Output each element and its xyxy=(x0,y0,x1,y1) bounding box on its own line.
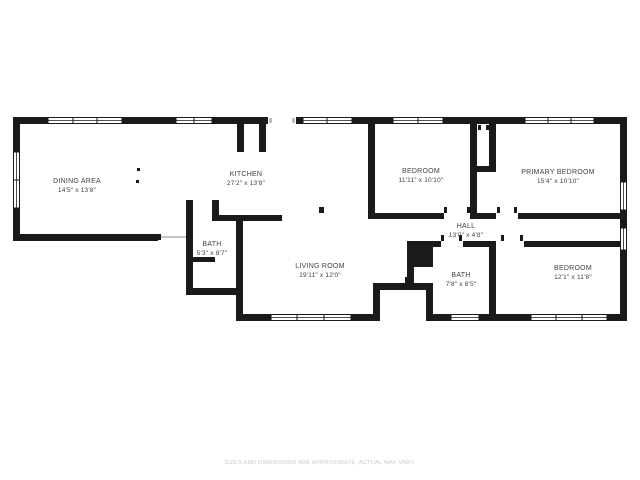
wall-segment xyxy=(237,124,244,152)
room-dims-kitchen: 27'2" x 13'8" xyxy=(227,180,266,187)
room-dims-primary-bedroom: 15'4" x 10'10" xyxy=(537,178,580,185)
window xyxy=(451,315,479,321)
window xyxy=(621,228,627,250)
wall-segment xyxy=(470,172,477,219)
wall-segment xyxy=(373,283,433,290)
room-dims-bath-2: 7'8" x 8'5" xyxy=(446,281,477,288)
window xyxy=(621,182,627,210)
window xyxy=(531,315,607,321)
wall-segment xyxy=(186,288,243,295)
room-label-dining-area: DINING AREA xyxy=(53,178,101,185)
wall-segment xyxy=(212,117,268,124)
room-dims-hall: 13'0" x 4'8" xyxy=(449,232,484,239)
door-jamb-tick xyxy=(441,235,444,241)
window xyxy=(14,152,20,208)
wall-segment xyxy=(122,117,176,124)
window xyxy=(48,118,122,124)
wall-segment xyxy=(479,314,531,321)
wall-segment xyxy=(368,213,444,219)
room-label-bedroom-1: BEDROOM xyxy=(402,168,440,175)
room-label-bedroom-3: BEDROOM xyxy=(554,265,592,272)
wall-segment xyxy=(193,257,215,262)
room-dims-bedroom-3: 12'1" x 11'8" xyxy=(554,274,592,281)
wall-segment xyxy=(212,215,282,221)
wall-segment xyxy=(296,117,303,124)
wall-segment xyxy=(236,314,271,321)
room-dims-dining-area: 14'5" x 13'8" xyxy=(58,187,97,194)
room-label-bath-1: BATH xyxy=(202,241,221,248)
wall-segment xyxy=(518,213,627,219)
wall-segment xyxy=(620,117,627,182)
room-label-kitchen: KITCHEN xyxy=(230,171,262,178)
room-labels: DINING AREA 14'5" x 13'8" KITCHEN 27'2" … xyxy=(53,168,595,288)
wall-segment xyxy=(13,117,20,152)
wall-segment xyxy=(620,250,627,321)
door-jamb-tick xyxy=(486,125,489,130)
room-label-living-room: LIVING ROOM xyxy=(295,263,344,270)
wall-segment xyxy=(236,215,243,321)
window xyxy=(393,118,443,124)
wall-segment xyxy=(470,166,496,172)
door-jamb-tick xyxy=(520,235,523,241)
wall-segment xyxy=(186,200,193,295)
wall-segment xyxy=(352,117,393,124)
wall-segment xyxy=(443,117,525,124)
shower-fixture xyxy=(407,241,433,267)
window xyxy=(271,315,351,321)
door-jamb-tick xyxy=(497,207,500,213)
room-dims-bath-1: 5'3" x 8'7" xyxy=(197,250,228,257)
door-jamb-tick xyxy=(158,234,161,240)
door-jamb-tick xyxy=(137,168,140,171)
window xyxy=(176,118,212,124)
door-jamb-tick xyxy=(292,118,295,123)
room-dims-living-room: 19'11" x 12'0" xyxy=(299,272,341,279)
dimensions-disclaimer: SIZES AND DIMENSIONS ARE APPROXIMATE, AC… xyxy=(224,460,415,466)
walls xyxy=(13,117,627,321)
floor-plan-drawing: DINING AREA 14'5" x 13'8" KITCHEN 27'2" … xyxy=(0,0,640,480)
wall-segment xyxy=(524,241,627,247)
window xyxy=(525,118,594,124)
wall-segment xyxy=(489,124,496,172)
wall-segment xyxy=(368,124,375,219)
wall-segment xyxy=(13,234,158,241)
window xyxy=(303,118,352,124)
wall-segment xyxy=(489,241,496,321)
floor-plan-page: DINING AREA 14'5" x 13'8" KITCHEN 27'2" … xyxy=(0,0,640,480)
wall-segment xyxy=(426,314,451,321)
wall-segment xyxy=(470,124,477,172)
door-jamb-tick xyxy=(405,277,409,283)
room-label-primary-bedroom: PRIMARY BEDROOM xyxy=(521,169,595,176)
door-jamb-tick xyxy=(514,207,517,213)
room-label-hall: HALL xyxy=(457,223,476,230)
door-jamb-tick xyxy=(467,207,470,213)
door-jamb-tick xyxy=(444,207,447,213)
door-jamb-tick xyxy=(478,125,481,130)
wall-segment xyxy=(259,124,266,152)
room-dims-bedroom-1: 11'11" x 10'10" xyxy=(399,177,444,184)
door-jamb-tick xyxy=(160,236,186,238)
door-jamb-tick xyxy=(136,180,139,183)
room-label-bath-2: BATH xyxy=(451,272,470,279)
wall-segment xyxy=(433,241,441,247)
door-jamb-tick xyxy=(319,207,324,213)
door-jamb-tick xyxy=(269,118,272,123)
door-jamb-tick xyxy=(501,235,504,241)
